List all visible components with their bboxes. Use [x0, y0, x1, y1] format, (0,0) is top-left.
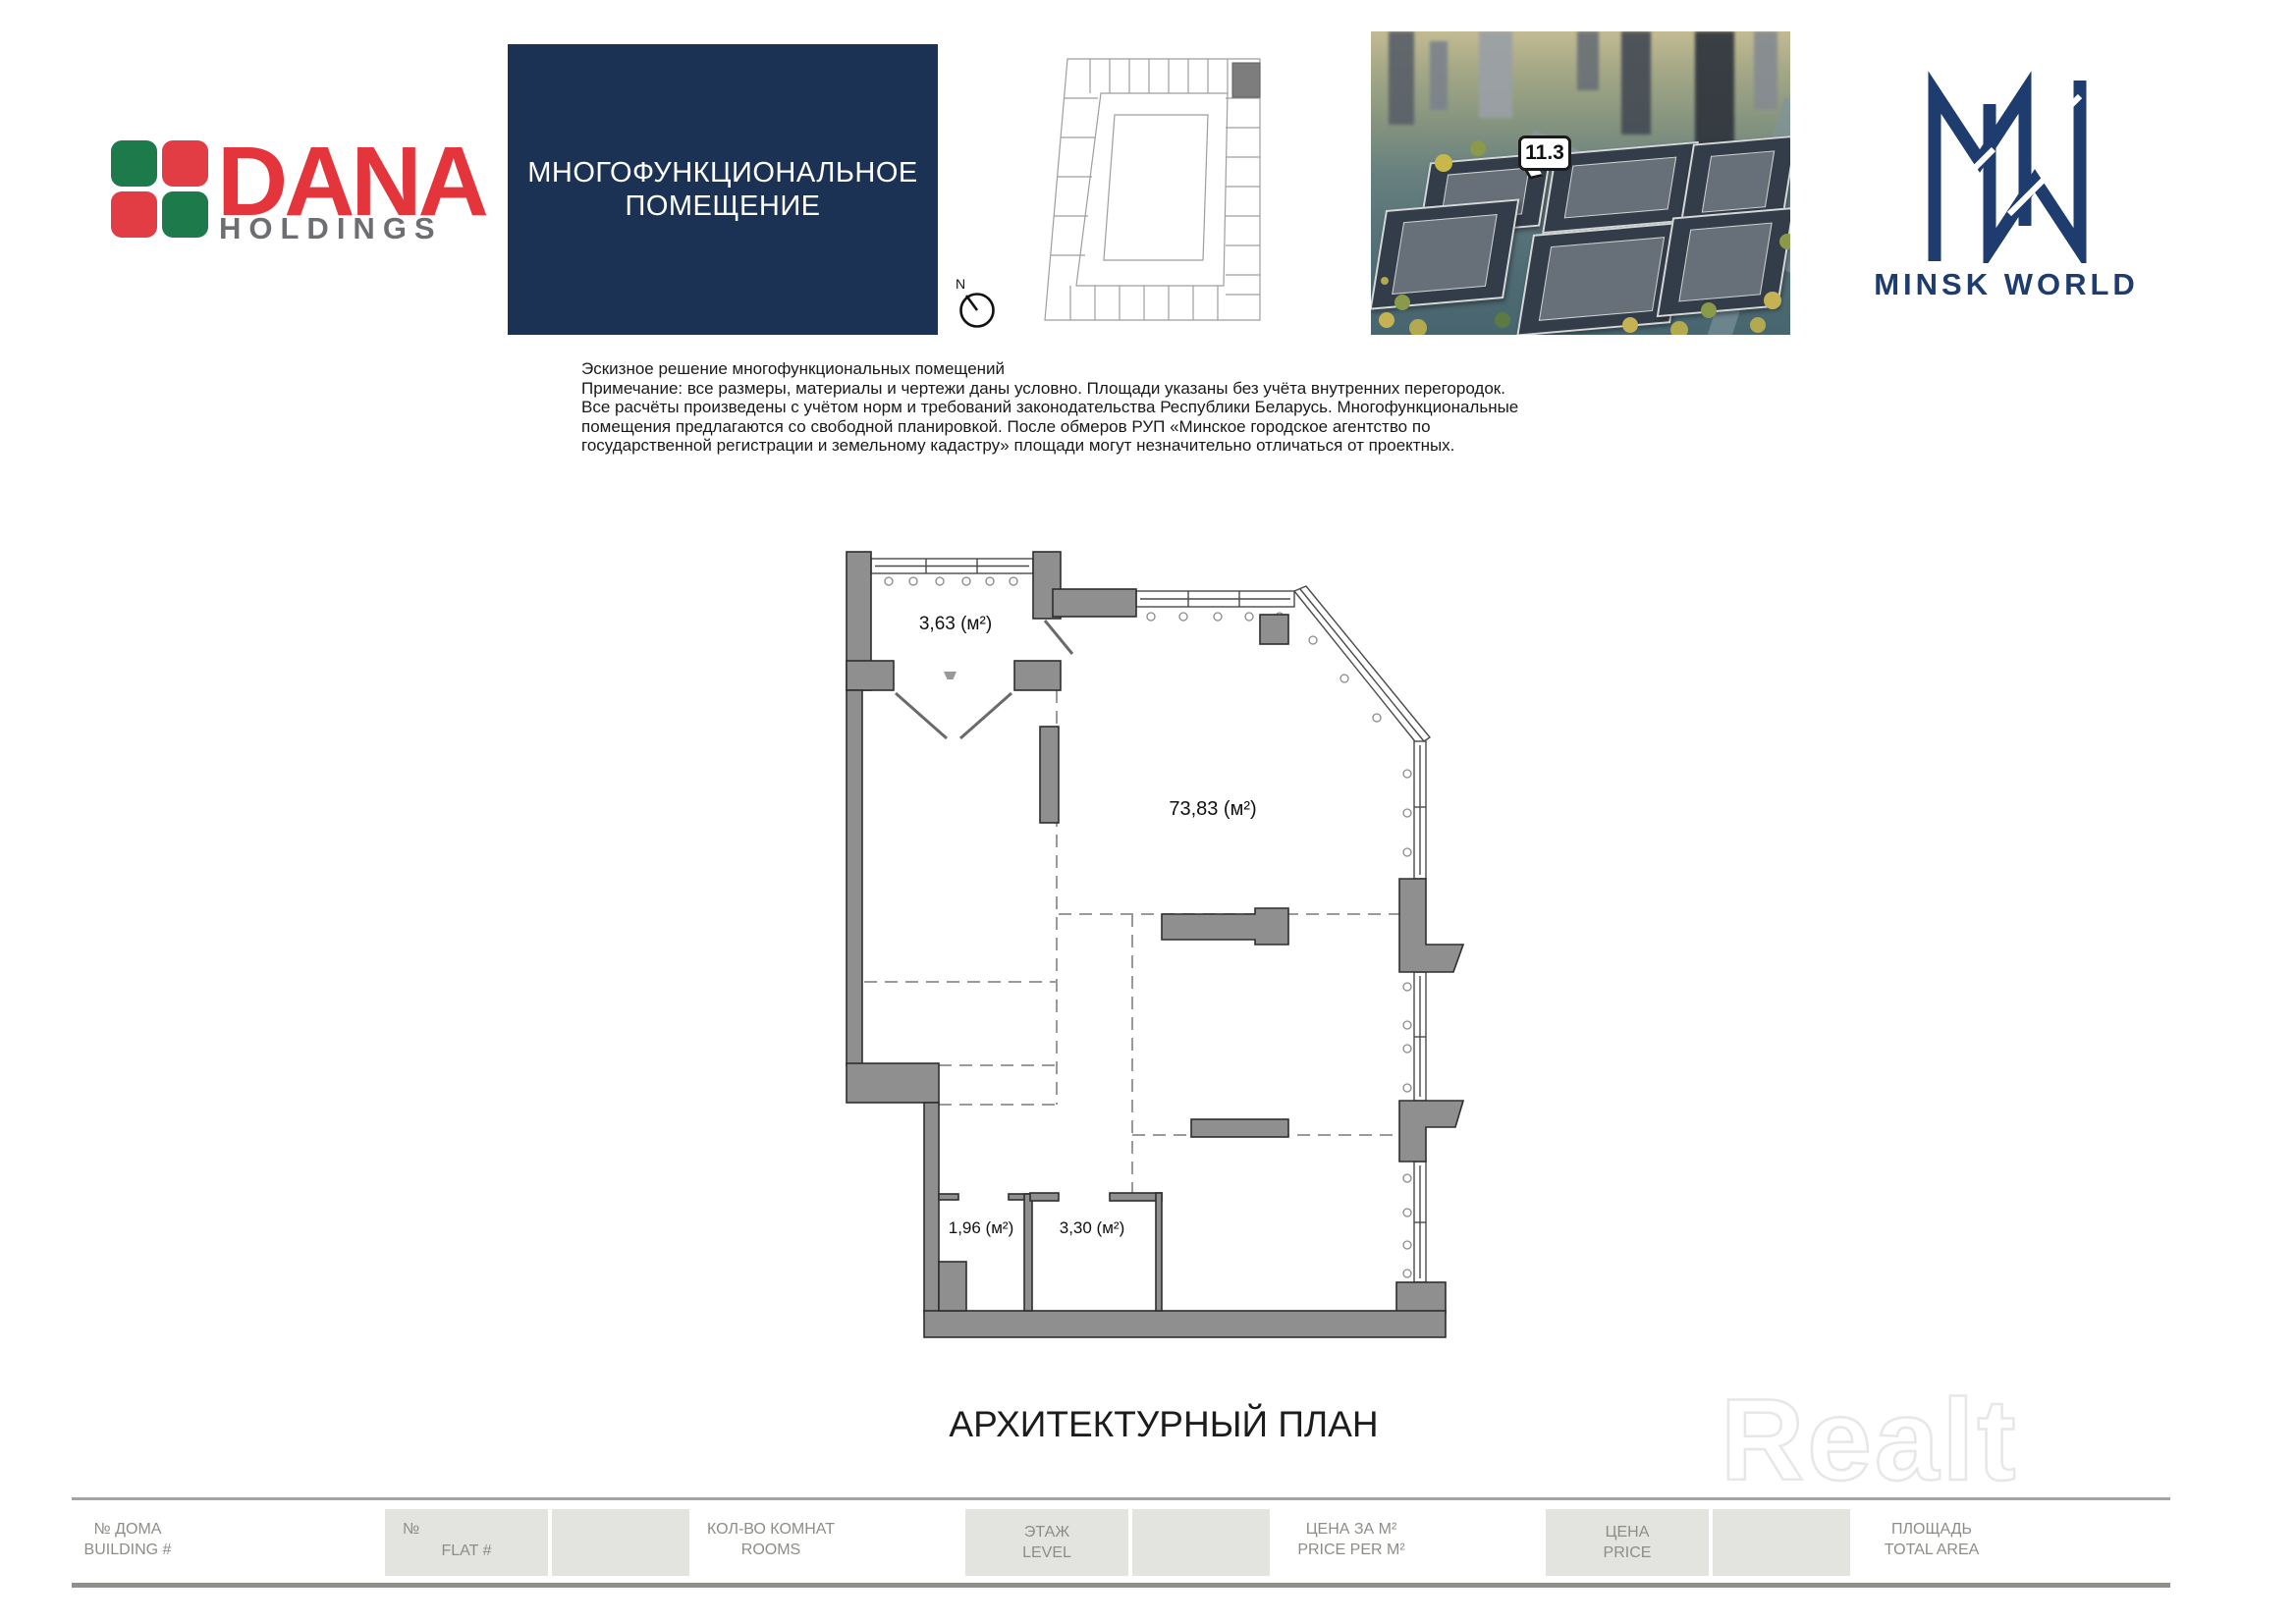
footer-box-flat: № FLAT #	[385, 1509, 548, 1576]
mw-monogram-icon	[1923, 65, 2092, 263]
unit-type-banner: МНОГОФУНКЦИОНАЛЬНОЕ ПОМЕЩЕНИЕ	[508, 44, 938, 335]
building-plan-outline	[1045, 59, 1260, 320]
page: DANA HOLDINGS МНОГОФУНКЦИОНАЛЬНОЕ ПОМЕЩЕ…	[0, 0, 2296, 1623]
dana-square-red-bl	[111, 191, 157, 238]
footer-flat-label: FLAT #	[385, 1542, 548, 1560]
footer-label-rooms-ru: КОЛ-ВО КОМНАТ	[624, 1519, 918, 1540]
ring-building	[1371, 198, 1519, 309]
footer-box-level: ЭТАЖ LEVEL	[965, 1509, 1128, 1576]
unit-type-line-2: ПОМЕЩЕНИЕ	[625, 189, 820, 223]
dana-square-red-tr	[162, 140, 208, 187]
footer-box-price: ЦЕНА PRICE	[1546, 1509, 1709, 1576]
compass-icon: N	[948, 273, 1007, 334]
notes: Эскизное решение многофункциональных пом…	[581, 359, 1518, 456]
courtyard	[1539, 237, 1665, 321]
highlighted-unit	[1232, 63, 1260, 97]
ring-building	[1657, 207, 1790, 317]
room-label-balcony: 3,63 (м²)	[919, 614, 992, 634]
courtyard	[1702, 150, 1775, 212]
note-line-2: Примечание: все размеры, материалы и чер…	[581, 379, 1518, 399]
footer-price-labels: ЦЕНА PRICE	[1546, 1522, 1709, 1563]
footer-label-level-ru: ЭТАЖ	[965, 1522, 1128, 1542]
footer-label-rooms: КОЛ-ВО КОМНАТ ROOMS	[624, 1519, 918, 1560]
vent-symbol	[944, 672, 957, 679]
tower-icon	[1430, 41, 1448, 110]
tower-icon	[1479, 31, 1512, 118]
footer-divider-bottom	[72, 1583, 2170, 1588]
dana-subtitle: HOLDINGS	[219, 211, 443, 246]
dashed-partition	[864, 690, 1399, 1194]
dana-logo: DANA HOLDINGS	[111, 140, 484, 241]
aerial-photo: 11.3	[1371, 31, 1790, 335]
footer-label-price-per-m2: ЦЕНА ЗА М² PRICE PER M²	[1204, 1519, 1499, 1560]
mw-wordmark: MINSK WORLD	[1834, 267, 2178, 302]
dana-logo-squares	[111, 140, 208, 238]
footer-label-total-area-en: TOTAL AREA	[1784, 1540, 2079, 1560]
dana-square-green-br	[162, 191, 208, 238]
footer-label-price-per-m2-ru: ЦЕНА ЗА М²	[1204, 1519, 1499, 1540]
room-label-main: 73,83 (м²)	[1169, 798, 1256, 820]
footer-label-total-area-ru: ПЛОЩАДЬ	[1784, 1519, 2079, 1540]
footer-label-building-en: BUILDING #	[0, 1540, 275, 1560]
watermark: Realt	[1721, 1382, 2019, 1498]
window-band	[871, 559, 1430, 1282]
note-line-1: Эскизное решение многофункциональных пом…	[581, 359, 1518, 379]
footer-label-rooms-en: ROOMS	[624, 1540, 918, 1560]
footer-level-labels: ЭТАЖ LEVEL	[965, 1522, 1128, 1563]
trees	[1381, 277, 1389, 285]
footer-divider-top	[72, 1497, 2170, 1500]
footer-label-price-en: PRICE	[1546, 1542, 1709, 1563]
courtyard	[1678, 223, 1772, 302]
note-line-5: государственной регистрации и земельному…	[581, 436, 1518, 456]
ring-building	[1516, 221, 1687, 335]
compass-needle	[966, 296, 977, 310]
room-label-small2: 3,30 (м²)	[1060, 1218, 1124, 1237]
tower-icon	[1754, 31, 1777, 110]
footer-label-total-area: ПЛОЩАДЬ TOTAL AREA	[1784, 1519, 2079, 1560]
footer-label-level-en: LEVEL	[965, 1542, 1128, 1563]
floor-plan: 3,63 (м²) 73,83 (м²) 1,96 (м²) 3,30 (м²)	[835, 540, 1473, 1355]
footer-label-building-ru: № ДОМА	[0, 1519, 275, 1540]
note-line-3: Все расчёты произведены с учётом норм и …	[581, 398, 1518, 417]
unit-type-line-1: МНОГОФУНКЦИОНАЛЬНОЕ	[527, 156, 917, 189]
note-line-4: помещения предлагаются со свободной план…	[581, 417, 1518, 437]
tower-icon	[1621, 31, 1651, 135]
courtyard	[1392, 214, 1498, 295]
compass-label: N	[956, 276, 965, 292]
mini-building-plan	[1021, 39, 1286, 334]
footer-label-price-ru: ЦЕНА	[1546, 1522, 1709, 1542]
tower-icon	[1389, 31, 1414, 125]
window-ticks	[885, 577, 1411, 1277]
courtyard	[1564, 157, 1677, 219]
building-number-callout: 11.3	[1518, 135, 1571, 171]
footer-label-building: № ДОМА BUILDING #	[0, 1519, 275, 1560]
room-label-small1: 1,96 (м²)	[949, 1218, 1013, 1237]
footer-flat-number-sign: №	[403, 1521, 419, 1539]
footer-label-price-per-m2-en: PRICE PER M²	[1204, 1540, 1499, 1560]
dana-square-green-tl	[111, 140, 157, 187]
tower-icon	[1577, 31, 1599, 90]
plan-title: АРХИТЕКТУРНЫЙ ПЛАН	[933, 1404, 1394, 1445]
